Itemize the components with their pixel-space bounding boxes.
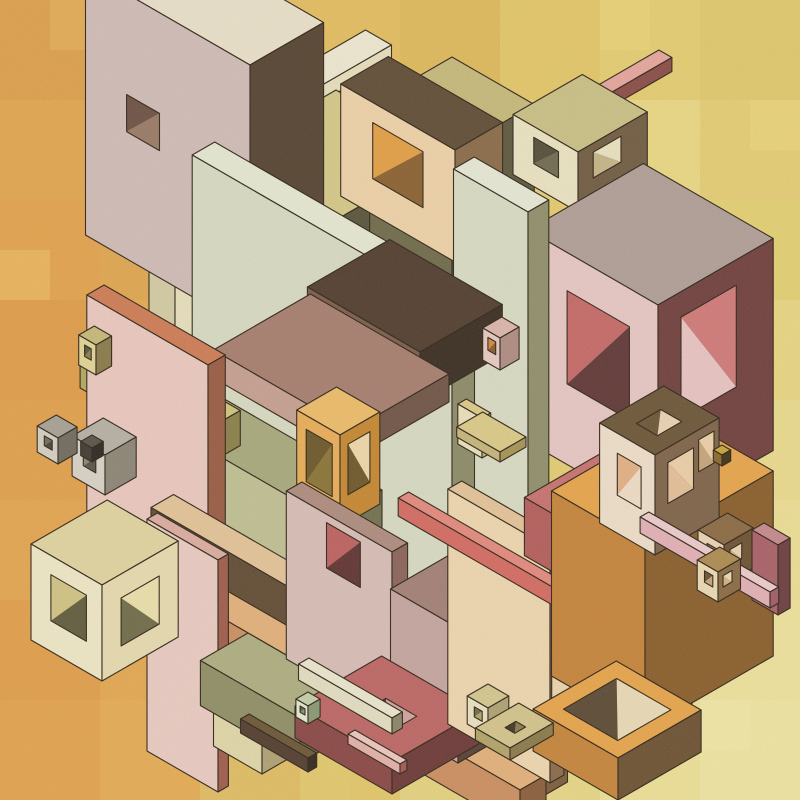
generative-artwork	[0, 0, 800, 800]
grain-overlay-light	[0, 0, 800, 800]
artwork-canvas	[0, 0, 800, 800]
